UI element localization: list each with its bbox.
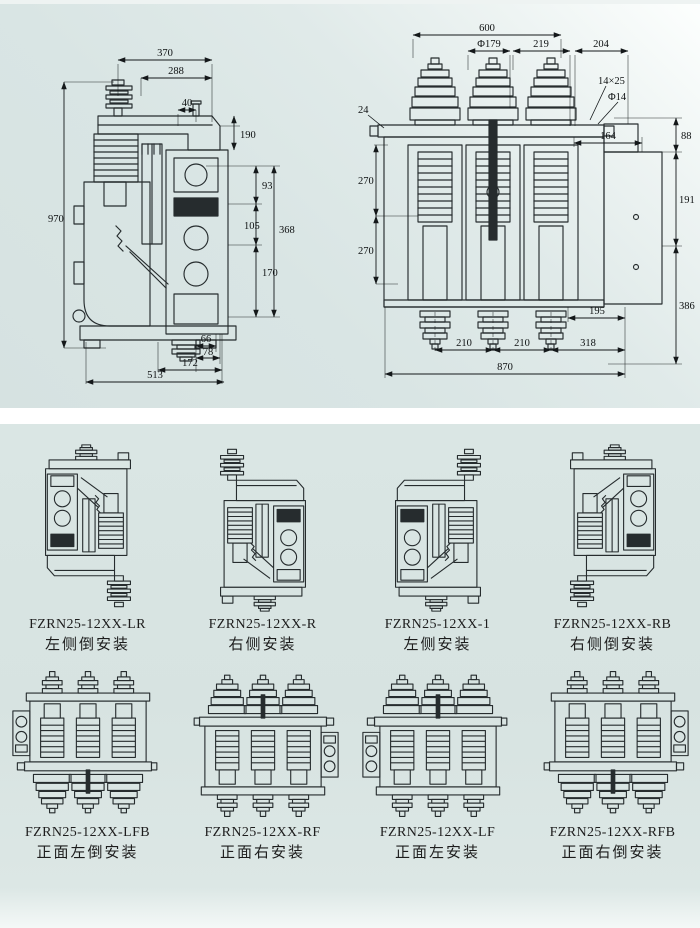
- variant-caption: FZRN25-12XX-1 左侧安装: [385, 617, 491, 654]
- dim-slot-14x25: 14×25: [598, 76, 625, 87]
- dim-164: 164: [600, 131, 617, 142]
- dim-24: 24: [358, 105, 369, 116]
- dim-318: 318: [580, 338, 596, 349]
- variant-figure-lr: FZRN25-12XX-LR 左侧倒安装: [0, 444, 175, 654]
- variant-figure-lfb: FZRN25-12XX-LFB 正面左倒安装: [0, 668, 175, 862]
- dim-970: 970: [48, 214, 64, 225]
- variant-model: FZRN25-12XX-R: [209, 617, 317, 633]
- variant-model: FZRN25-12XX-RF: [204, 825, 320, 841]
- variant-figure-lf: FZRN25-12XX-LF 正面左安装: [350, 668, 525, 862]
- dim-170: 170: [262, 268, 278, 279]
- side-view-equipment-outline: [73, 80, 236, 361]
- variant-drawing-rfb: [537, 668, 689, 820]
- variant-drawing-lf: [362, 668, 514, 820]
- variant-caption: FZRN25-12XX-RB 右侧倒安装: [554, 617, 672, 654]
- variant-model: FZRN25-12XX-LF: [380, 825, 495, 841]
- variant-caption: FZRN25-12XX-LF 正面左安装: [380, 825, 495, 862]
- variant-caption: FZRN25-12XX-R 右侧安装: [209, 617, 317, 654]
- variant-caption: FZRN25-12XX-LR 左侧倒安装: [29, 617, 146, 654]
- variant-drawing-r: [201, 444, 325, 612]
- dim-88: 88: [681, 131, 692, 142]
- dim-dia179: Φ179: [477, 39, 500, 50]
- variant-figure-rfb: FZRN25-12XX-RFB 正面右倒安装: [525, 668, 700, 862]
- dimension-drawings-panel: 370 288 190 40 970 93 105 368 170 66: [0, 0, 700, 408]
- variant-description: 右侧安装: [209, 633, 317, 654]
- dim-270b: 270: [358, 246, 374, 257]
- dim-219: 219: [533, 39, 549, 50]
- dim-270a: 270: [358, 176, 374, 187]
- variant-description: 正面右倒安装: [550, 841, 676, 862]
- variant-caption: FZRN25-12XX-RFB 正面右倒安装: [550, 825, 676, 862]
- variant-figure-r: FZRN25-12XX-R 右侧安装: [175, 444, 350, 654]
- variant-model: FZRN25-12XX-RB: [554, 617, 672, 633]
- variant-model: FZRN25-12XX-1: [385, 617, 491, 633]
- variants-grid: FZRN25-12XX-LR 左侧倒安装 FZRN25-12XX-R 右侧安装 …: [0, 424, 700, 862]
- dim-370: 370: [157, 48, 173, 59]
- variant-caption: FZRN25-12XX-LFB 正面左倒安装: [25, 825, 150, 862]
- dim-66: 66: [201, 334, 212, 345]
- catalog-page: 370 288 190 40 970 93 105 368 170 66: [0, 0, 700, 928]
- variant-figure-rb: FZRN25-12XX-RB 右侧倒安装: [525, 444, 700, 654]
- dim-368: 368: [279, 225, 295, 236]
- variant-model: FZRN25-12XX-RFB: [550, 825, 676, 841]
- variant-description: 左侧倒安装: [29, 633, 146, 654]
- dim-600: 600: [479, 23, 495, 34]
- dim-191: 191: [679, 195, 695, 206]
- dim-210a: 210: [456, 338, 472, 349]
- variant-drawing-l: [376, 444, 500, 612]
- variant-figure-rf: FZRN25-12XX-RF 正面右安装: [175, 668, 350, 862]
- dim-78: 78: [203, 347, 214, 358]
- front-view-drawing: 600 Φ179 219 204 14×25 Φ14 24 164 88 191: [358, 12, 698, 394]
- variant-drawing-rb: [551, 444, 675, 612]
- variant-drawing-lr: [26, 444, 150, 612]
- section-divider: [0, 408, 700, 424]
- variant-description: 右侧倒安装: [554, 633, 672, 654]
- dim-210b: 210: [514, 338, 530, 349]
- variant-drawing-lfb: [12, 668, 164, 820]
- dim-105: 105: [244, 221, 260, 232]
- mounting-variants-panel: FZRN25-12XX-LR 左侧倒安装 FZRN25-12XX-R 右侧安装 …: [0, 424, 700, 928]
- dim-190: 190: [240, 130, 256, 141]
- variant-drawing-rf: [187, 668, 339, 820]
- dim-513: 513: [147, 370, 163, 381]
- variant-description: 正面左安装: [380, 841, 495, 862]
- dim-dia14: Φ14: [608, 92, 627, 103]
- dim-40: 40: [182, 98, 193, 109]
- dim-195: 195: [589, 306, 605, 317]
- dim-288: 288: [168, 66, 184, 77]
- dim-93: 93: [262, 181, 273, 192]
- variant-figure-l: FZRN25-12XX-1 左侧安装: [350, 444, 525, 654]
- variant-description: 左侧安装: [385, 633, 491, 654]
- variant-caption: FZRN25-12XX-RF 正面右安装: [204, 825, 320, 862]
- variant-model: FZRN25-12XX-LFB: [25, 825, 150, 841]
- dim-386: 386: [679, 301, 695, 312]
- dim-172: 172: [182, 358, 198, 369]
- variant-description: 正面右安装: [204, 841, 320, 862]
- side-view-drawing: 370 288 190 40 970 93 105 368 170 66: [46, 26, 346, 386]
- dim-870: 870: [497, 362, 513, 373]
- variant-description: 正面左倒安装: [25, 841, 150, 862]
- dim-204: 204: [593, 39, 610, 50]
- variant-model: FZRN25-12XX-LR: [29, 617, 146, 633]
